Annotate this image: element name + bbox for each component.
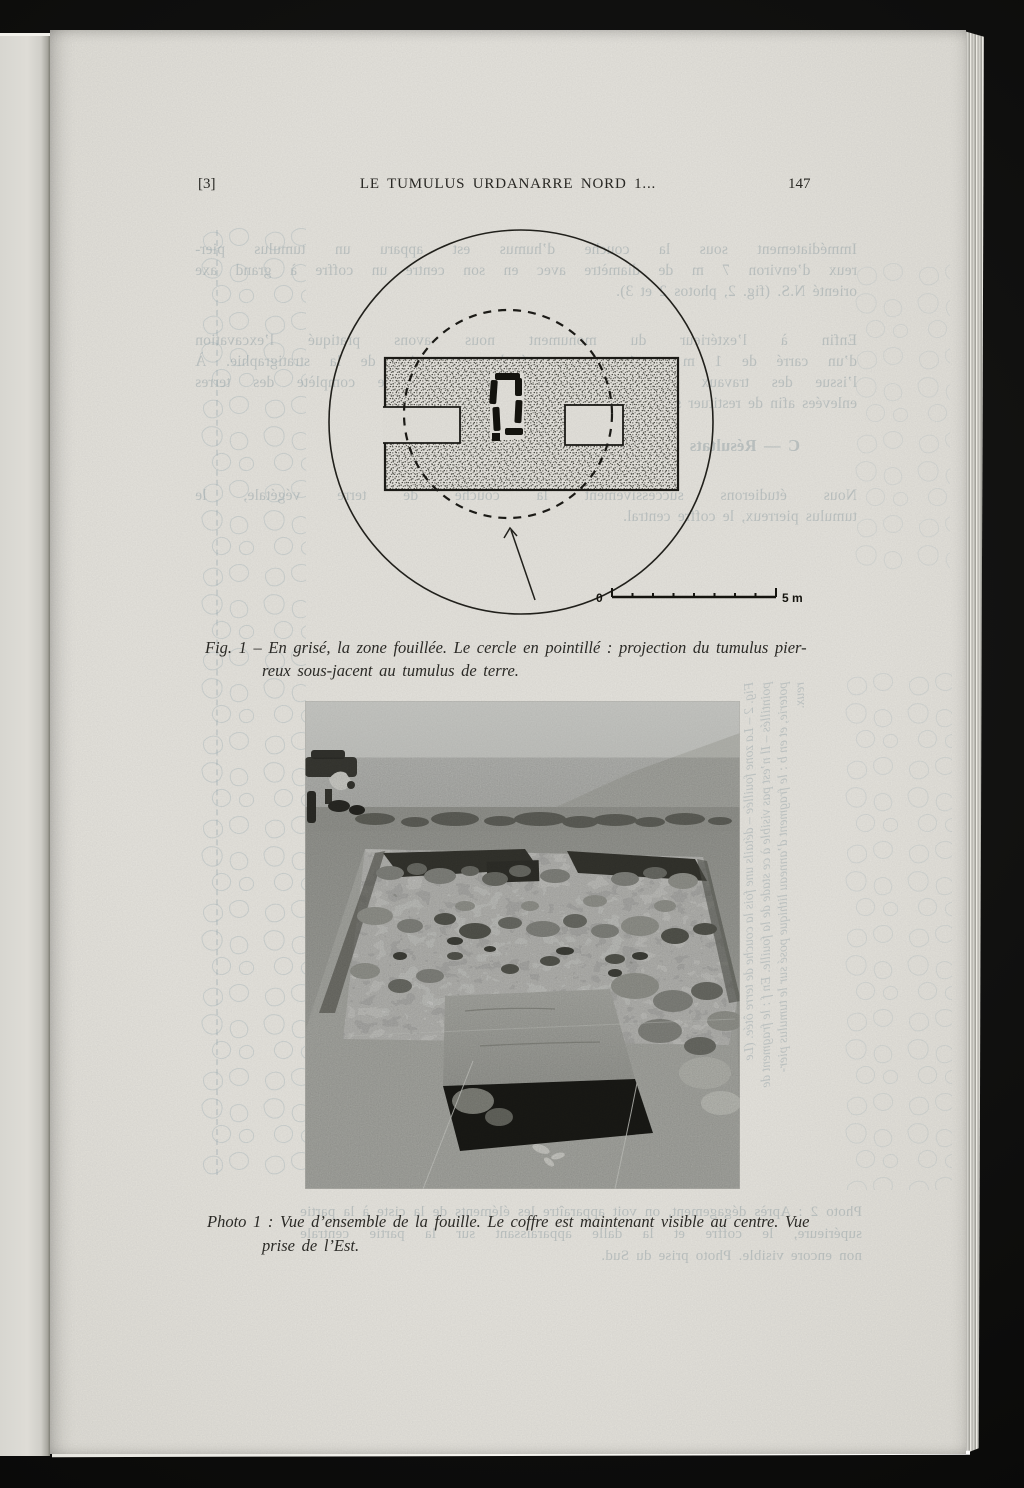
fig1-caption: Fig. 1 – En grisé, la zone fouillée. Le … xyxy=(205,636,873,682)
fig1-plan-diagram: 0 5 m xyxy=(320,226,810,626)
pointer-arrow xyxy=(504,528,535,600)
bleed-text: pointillés – Il n’est pas visible à ce s… xyxy=(757,682,774,1118)
facing-page-edge xyxy=(0,36,50,1456)
bleedthrough-dashed-line xyxy=(216,230,218,1175)
photo1-caption: Photo 1 : Vue d’ensemble de la fouille. … xyxy=(207,1210,875,1258)
photo1-caption-line1: Photo 1 : Vue d’ensemble de la fouille. … xyxy=(207,1210,875,1234)
bleed-text: Fig. 2 – La zone fouillée – détails une … xyxy=(740,682,757,1118)
bleed-text: poterie, et en b : le fragment d’anneau … xyxy=(774,682,791,1118)
scale-bar: 0 5 m xyxy=(596,588,803,605)
bleed-text: reux. xyxy=(791,682,808,1118)
scale-end-label: 5 m xyxy=(782,591,803,605)
book-scan: Immédiatement sous la couche d’humus est… xyxy=(0,0,1024,1488)
running-title: LE TUMULUS URDANARRE NORD 1... xyxy=(50,176,966,193)
page-top-edge xyxy=(0,33,52,36)
fig1-caption-line2: reux sous-jacent au tumulus de terre. xyxy=(262,659,873,682)
photo1-excavation-image xyxy=(305,701,740,1189)
running-header: [3] LE TUMULUS URDANARRE NORD 1... 147 xyxy=(50,176,966,198)
fig1-caption-line1: Fig. 1 – En grisé, la zone fouillée. Le … xyxy=(205,636,873,659)
page-number: 147 xyxy=(788,176,811,193)
bleedthrough-vertical-caption: Fig. 2 – La zone fouillée – détails une … xyxy=(740,682,808,1118)
central-cist-plan xyxy=(489,373,524,441)
photo-grain xyxy=(305,797,740,1189)
bleedthrough-stone-plan-right-top xyxy=(850,260,950,570)
bleedthrough-stone-plan-right xyxy=(840,670,952,1190)
photo1-caption-line2: prise de l’Est. xyxy=(262,1234,875,1258)
scale-zero-label: 0 xyxy=(596,591,603,605)
page-stack-edge xyxy=(964,31,985,1454)
page-147: Immédiatement sous la couche d’humus est… xyxy=(50,30,966,1454)
